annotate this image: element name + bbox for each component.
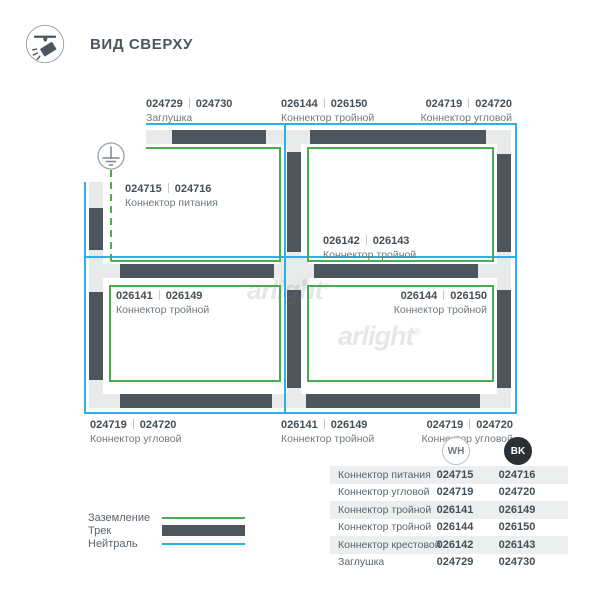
part-name: Коннектор тройной (323, 249, 416, 262)
legend-label: Заземление (88, 512, 150, 524)
part-name: Коннектор тройной (394, 304, 487, 317)
part-codes: 026144026150 (281, 98, 374, 111)
ground-line-swatch (162, 517, 245, 519)
color-badge-white: WH (442, 437, 470, 465)
part-name: Коннектор тройной (116, 304, 209, 317)
legend-item-neutral: Нейтраль (88, 538, 258, 550)
label-right-t-connector: 026144026150 Коннектор тройной (394, 290, 487, 317)
part-codes: 024719024720 (421, 98, 513, 111)
label-bottom-t-connector: 026141026149 Коннектор тройной (281, 419, 374, 446)
part-name: Заглушка (146, 112, 232, 125)
table-row: Коннектор тройной 026141 026149 (330, 501, 568, 519)
part-codes: 024719024720 (422, 419, 514, 432)
table-row: Коннектор угловой 024719 024720 (330, 484, 568, 502)
part-codes: 026141026149 (116, 290, 209, 303)
part-codes: 026144026150 (394, 290, 487, 303)
part-name: Коннектор угловой (90, 433, 182, 446)
table-row: Коннектор тройной 026144 026150 (330, 519, 568, 537)
label-end-cap: 024729024730 Заглушка (146, 98, 232, 125)
watermark: arlight® (338, 321, 421, 352)
part-codes: 026141026149 (281, 419, 374, 432)
legend-label: Трек (88, 525, 111, 537)
part-name: Коннектор угловой (421, 112, 513, 125)
part-name: Коннектор питания (125, 197, 218, 210)
table-row: Коннектор крестовой 026142 026143 (330, 536, 568, 554)
label-center-connector: 026142026143 Коннектор тройной (323, 235, 416, 262)
color-badge-black: BK (504, 437, 532, 465)
watermark: arlight® (247, 275, 330, 306)
earth-ground-icon (98, 143, 124, 169)
part-codes: 024729024730 (146, 98, 232, 111)
label-top-corner-connector: 024719024720 Коннектор угловой (421, 98, 513, 125)
legend-item-ground: Заземление (88, 512, 258, 524)
legend-item-track: Трек (88, 525, 258, 537)
part-codes: 024719024720 (90, 419, 182, 432)
part-name: Коннектор тройной (281, 433, 374, 446)
part-codes: 026142026143 (323, 235, 416, 248)
neutral-line-swatch (162, 543, 245, 545)
label-top-t-connector: 026144026150 Коннектор тройной (281, 98, 374, 125)
table-row: Заглушка 024729 024730 (330, 554, 568, 572)
label-power-connector: 024715024716 Коннектор питания (125, 183, 218, 210)
table-row: Коннектор питания 024715 024716 (330, 466, 568, 484)
label-left-t-connector: 026141026149 Коннектор тройной (116, 290, 209, 317)
part-name: Коннектор тройной (281, 112, 374, 125)
page: ВИД СВЕРХУ (0, 0, 600, 600)
label-bottom-left-corner: 024719024720 Коннектор угловой (90, 419, 182, 446)
parts-table: Коннектор питания 024715 024716 Коннекто… (330, 466, 568, 571)
legend-label: Нейтраль (88, 538, 138, 550)
part-codes: 024715024716 (125, 183, 218, 196)
track-swatch (162, 525, 245, 536)
